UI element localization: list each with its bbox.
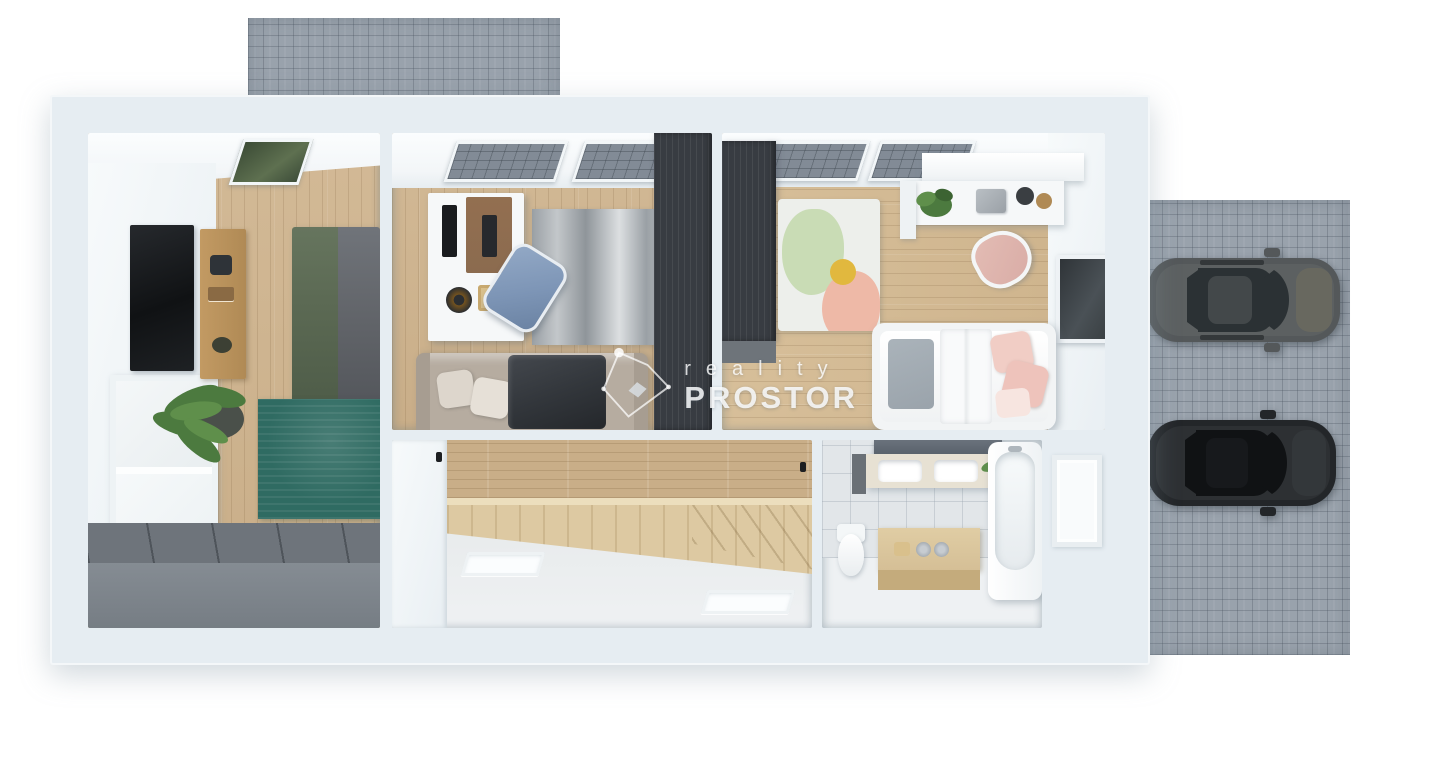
box-knob — [916, 542, 931, 557]
monitor — [442, 205, 457, 257]
bed-blanket-gray — [888, 339, 934, 409]
decor-books — [208, 287, 234, 301]
bed-duvet — [940, 329, 992, 424]
floorplan-scene: reality PROSTOR — [0, 0, 1440, 766]
sofa-pillow — [469, 376, 513, 420]
decor-plant-small — [212, 337, 232, 353]
paved-terrace — [248, 18, 560, 102]
office-wardrobe-dark — [654, 133, 712, 430]
door-handle-mark — [800, 462, 806, 472]
floor-light-recess — [701, 590, 796, 614]
rug-dot-yellow — [830, 259, 856, 285]
keyboard — [482, 215, 497, 257]
sink — [878, 460, 922, 482]
sink — [934, 460, 978, 482]
sofa-arm — [416, 353, 430, 430]
toilet-bowl — [838, 534, 864, 576]
kids-bed — [872, 323, 1056, 430]
kids-wardrobe-front — [722, 341, 776, 363]
desk-tray — [1016, 187, 1034, 205]
rug-teal — [258, 399, 380, 519]
bathroom-window — [1052, 455, 1102, 547]
wardrobe-front-face — [88, 563, 380, 628]
potted-plant — [146, 373, 262, 469]
laptop — [976, 189, 1006, 213]
vanity-side-cabinet — [852, 454, 866, 494]
box-front — [878, 570, 980, 590]
sofa-arm — [634, 353, 648, 430]
desk-plant — [914, 183, 956, 223]
room-hallway — [392, 440, 812, 628]
room-kids-bedroom — [722, 133, 1105, 430]
vanity-counter — [866, 454, 1006, 488]
sofa — [416, 353, 648, 430]
bedroom-roof-window — [229, 139, 314, 185]
door-handle-mark — [436, 452, 442, 462]
rug-pastel — [778, 199, 880, 331]
room-bathroom — [822, 440, 1042, 628]
box-knob — [934, 542, 949, 557]
decor-object — [210, 255, 232, 275]
bathtub-faucet — [1008, 446, 1022, 452]
floor-light-recess — [461, 552, 546, 576]
stair-handrail-ledge — [447, 498, 812, 505]
box-tray — [894, 542, 910, 556]
car-suv-top-view — [1146, 242, 1346, 358]
bed-double — [292, 227, 380, 409]
car-sedan-top-view — [1146, 402, 1340, 522]
bathtub — [988, 442, 1042, 600]
bed-pillow-small — [995, 387, 1032, 418]
wardrobe-gray — [88, 523, 380, 628]
room-master-bedroom — [88, 133, 380, 628]
hallway-west-wall — [392, 440, 447, 628]
wardrobe-top-face — [88, 523, 380, 563]
toilet — [836, 524, 866, 578]
desk-tray — [1036, 193, 1052, 209]
room-office — [392, 133, 712, 430]
building-footprint — [50, 95, 1150, 665]
bathtub-basin — [995, 452, 1035, 570]
sofa-blanket-dark — [508, 355, 606, 429]
sideboard — [200, 229, 246, 379]
office-roof-window — [443, 141, 568, 182]
stair-wall-wood — [447, 440, 812, 498]
record-player — [446, 287, 472, 313]
bed-blanket-gray — [338, 227, 380, 409]
bed-blanket-green — [292, 227, 338, 409]
kids-wall-shelf — [922, 153, 1084, 181]
tv-screen — [130, 225, 194, 371]
kids-wardrobe-dark — [722, 141, 776, 341]
storage-box-wood — [878, 528, 980, 590]
